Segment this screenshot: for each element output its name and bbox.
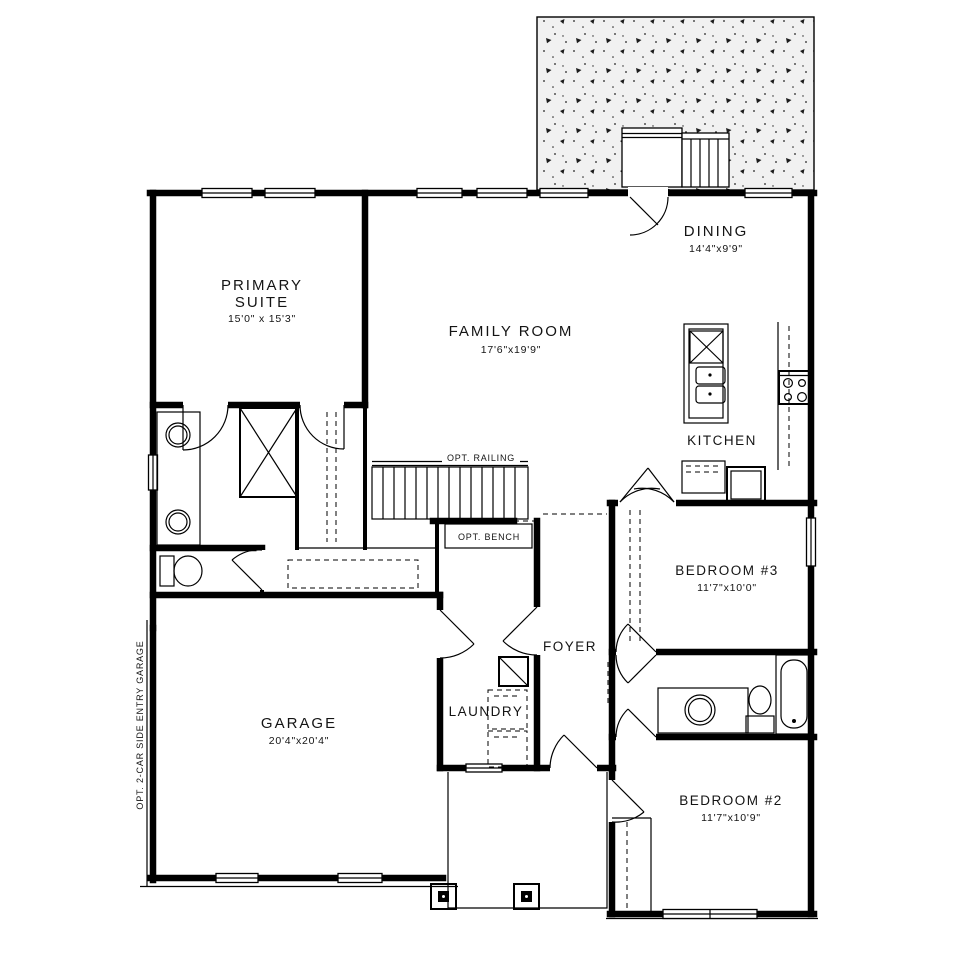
room-label-primary-suite: PRIMARY xyxy=(221,277,303,294)
sink xyxy=(166,423,190,447)
toilet xyxy=(746,686,774,733)
primary-bathroom xyxy=(157,408,336,586)
room-dims-garage: 20'4"x20'4" xyxy=(269,735,330,747)
window xyxy=(417,189,462,198)
floor-plan-canvas: OPT. RAILING OPT. BENCH xyxy=(0,0,960,960)
bathtub xyxy=(776,655,812,734)
patio-door xyxy=(630,197,668,235)
kitchen-fixtures xyxy=(682,322,810,503)
room-label-bedroom-3: BEDROOM #3 xyxy=(675,563,779,578)
range xyxy=(779,371,810,404)
room-label-bedroom-2: BEDROOM #2 xyxy=(679,793,783,808)
window xyxy=(149,455,158,490)
window xyxy=(540,189,588,198)
room-label-foyer: FOYER xyxy=(543,639,597,654)
garage-window xyxy=(338,874,382,883)
staircase: OPT. RAILING xyxy=(372,451,528,519)
refrigerator xyxy=(727,467,765,503)
room-label-kitchen: KITCHEN xyxy=(687,433,757,448)
room-dims-dining: 14'4"x9'9" xyxy=(689,243,743,255)
room-label-garage: GARAGE xyxy=(261,715,337,732)
hall-double-doors xyxy=(620,468,674,502)
patio-steps xyxy=(682,133,729,187)
opt-side-garage-label: OPT. 2-CAR SIDE ENTRY GARAGE xyxy=(135,640,145,809)
front-porch xyxy=(431,772,607,909)
garage-window xyxy=(216,874,258,883)
kitchen-island xyxy=(684,324,728,423)
window xyxy=(466,764,502,772)
window xyxy=(265,189,315,198)
primary-closet-door xyxy=(300,405,344,449)
room-label-laundry: LAUNDRY xyxy=(449,704,524,719)
shower xyxy=(240,408,297,497)
room-dims-bedroom-3: 11'7"x10'0" xyxy=(697,582,757,594)
patio-landing xyxy=(622,128,682,187)
mud-hall: OPT. BENCH xyxy=(445,514,607,686)
kitchen-sink xyxy=(696,367,725,403)
porch-column xyxy=(514,884,539,909)
room-label-family-room: FAMILY ROOM xyxy=(449,323,574,340)
hall-bathroom xyxy=(658,655,812,734)
window xyxy=(202,189,252,198)
window xyxy=(477,189,527,198)
optional-dashed-area xyxy=(288,560,418,588)
pantry-cabinet xyxy=(682,461,725,493)
sink xyxy=(685,695,715,725)
window xyxy=(807,518,816,566)
laundry-appliances xyxy=(488,690,527,767)
floor-plan-drawing: OPT. RAILING OPT. BENCH xyxy=(0,0,960,960)
window xyxy=(745,189,792,198)
opt-railing-label: OPT. RAILING xyxy=(447,453,515,463)
window xyxy=(663,910,757,919)
porch-column xyxy=(431,884,456,909)
opt-bench-label: OPT. BENCH xyxy=(458,532,520,542)
room-dims-primary-suite: 15'0" x 15'3" xyxy=(228,313,296,325)
room-label-dining: DINING xyxy=(684,223,749,240)
room-dims-bedroom-2: 11'7"x10'9" xyxy=(701,812,761,824)
room-dims-family-room: 17'6"x19'9" xyxy=(481,344,542,356)
hall-bath-door xyxy=(616,655,656,683)
dishwasher xyxy=(690,331,723,363)
patio xyxy=(537,17,814,190)
room-label-primary-suite-2: SUITE xyxy=(235,294,289,311)
toilet xyxy=(160,556,202,586)
